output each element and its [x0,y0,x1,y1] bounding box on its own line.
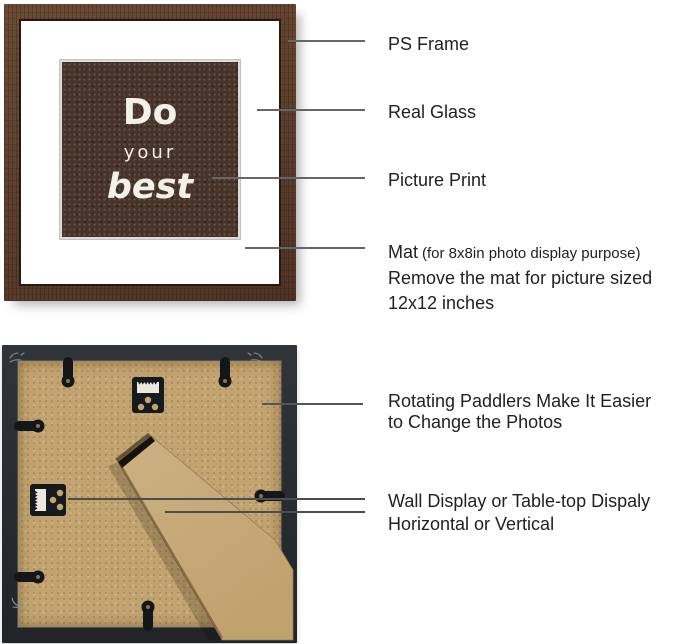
rotating-paddle-icon [142,601,155,632]
callout-line-real-glass [257,109,365,111]
callout-line-rotating-paddlers [262,403,363,405]
back-hardware-graphic [2,345,297,643]
sawtooth-hanger-icon [132,377,164,413]
real-glass-label: Real Glass [388,101,476,124]
mat-label-line2: Remove the mat for picture sized [388,266,652,291]
mat-label: Mat(for 8x8in photo display purpose) Rem… [388,240,652,316]
easel-stand [108,433,293,640]
rotating-paddle-icon [14,420,45,433]
callout-line-mat [245,247,365,249]
rotating-paddlers-label: Rotating Paddlers Make It Easier to Chan… [388,391,651,433]
rotating-paddle-icon [219,357,232,388]
back-view-photo [2,345,297,643]
product-feature-diagram: Do your best [0,0,679,644]
sawtooth-hanger-icon [30,484,66,516]
picture-word-best: best [107,170,193,205]
picture-word-your: your [124,144,176,162]
ps-frame-label: PS Frame [388,33,469,56]
callout-line-wall-display [68,498,365,500]
rotating-paddle-icon [14,571,45,584]
picture-print: Do your best [62,62,238,237]
rotating-paddle-icon [255,490,286,503]
corner-scratch-mark-icon [10,353,24,362]
picture-word-do: Do [123,95,178,131]
picture-print-label: Picture Print [388,169,486,192]
corner-scratch-mark-icon [12,598,25,610]
front-view-photo: Do your best [4,4,296,301]
display-mode-line1: Wall Display or Table-top Dispaly [388,490,650,513]
corner-scratch-mark-icon [248,353,262,362]
mat-label-line1: Mat(for 8x8in photo display purpose) [388,240,652,266]
mat-label-detail: (for 8x8in photo display purpose) [422,245,640,262]
mat-label-main: Mat [388,242,418,262]
callout-line-ps-frame [288,40,365,42]
rotating-paddle-icon [62,357,75,388]
mat-label-line3: 12x12 inches [388,291,652,316]
display-mode-line2: Horizontal or Vertical [388,513,650,536]
callout-line-tabletop-display [165,511,365,513]
callout-line-picture-print [212,177,365,179]
rotating-paddlers-line1: Rotating Paddlers Make It Easier [388,391,651,412]
rotating-paddlers-line2: to Change the Photos [388,412,651,433]
display-mode-label: Wall Display or Table-top Dispaly Horizo… [388,490,650,536]
